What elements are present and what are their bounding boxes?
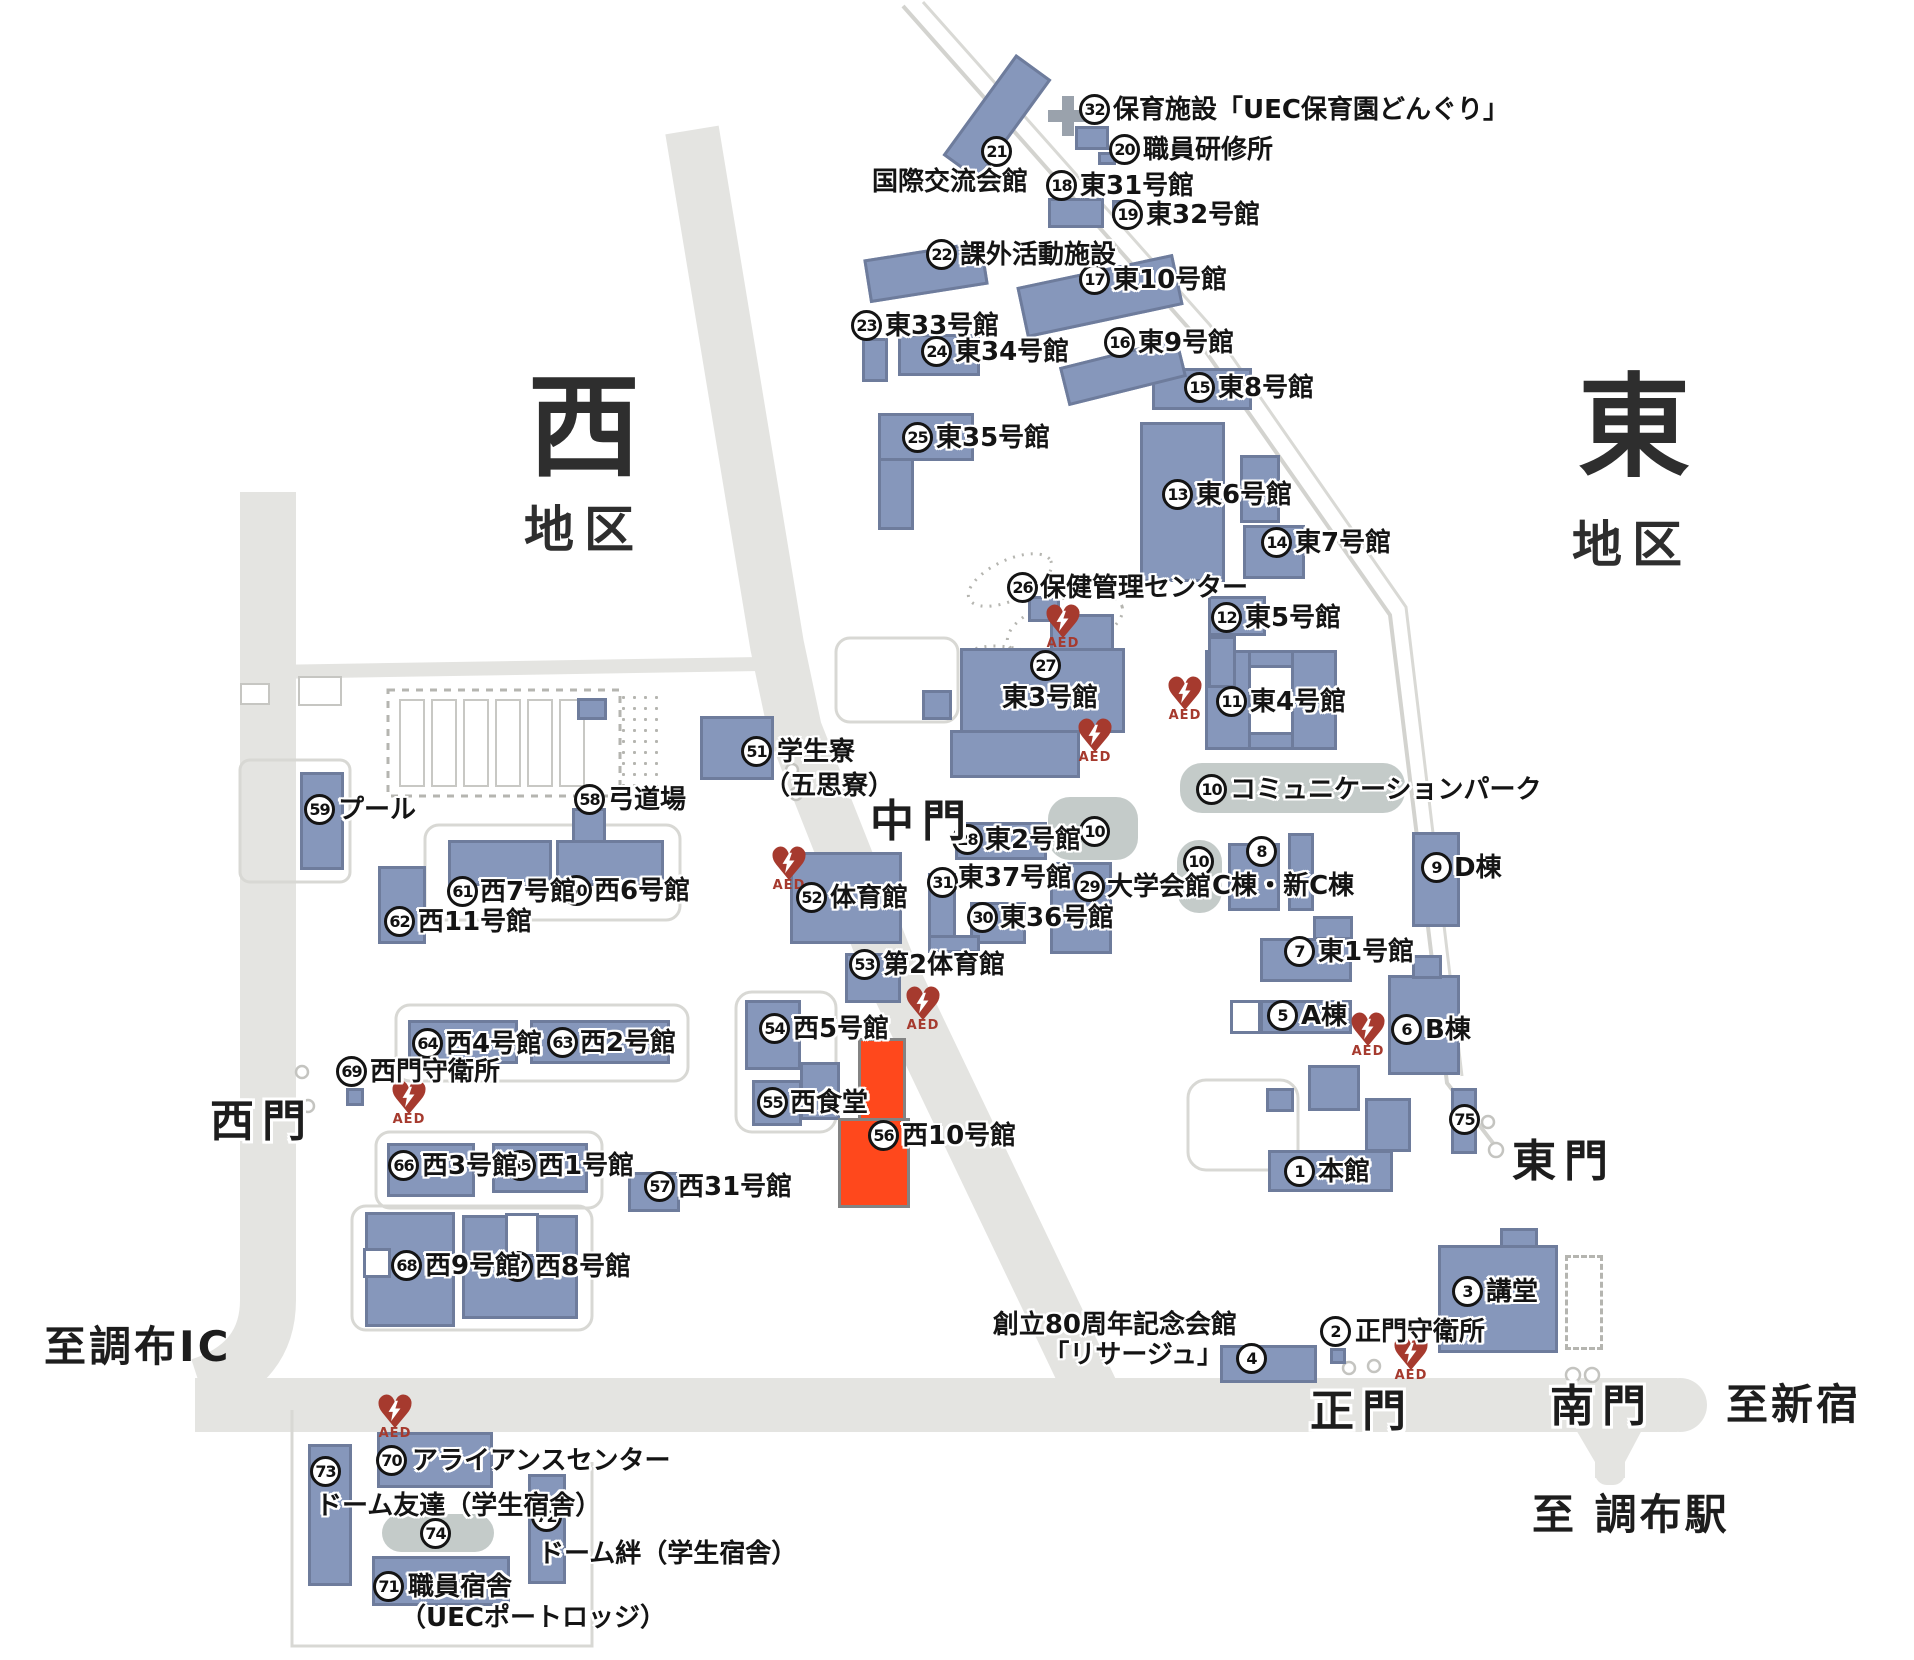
building-52-label: 体育館 <box>830 884 908 913</box>
gate-label-0: 中門 <box>870 800 974 844</box>
building-18-shape[interactable] <box>1048 198 1104 228</box>
building-55-marker[interactable]: 55 <box>757 1087 788 1118</box>
campus-map: 1本館2正門守衛所3講堂4創立80周年記念会館「リサージュ」5A棟6B棟7東1号… <box>0 0 1914 1660</box>
building-14-marker[interactable]: 14 <box>1261 527 1292 558</box>
building-10-label: コミュニケーションパーク <box>1230 776 1541 805</box>
deco-dashed-area <box>1565 1255 1603 1350</box>
building-69-shape[interactable] <box>346 1088 364 1106</box>
building-2-marker[interactable]: 2 <box>1320 1316 1351 1347</box>
building-24-label: 東34号館 <box>955 338 1069 367</box>
building-shape <box>1266 1088 1294 1112</box>
building-55-label: 西食堂 <box>790 1089 868 1118</box>
building-70-label: アライアンスセンター <box>412 1447 670 1476</box>
building-51-label: 学生寮 <box>777 738 855 767</box>
direction-label-2: 至 調布駅 <box>1532 1494 1730 1536</box>
building-14-label: 東7号館 <box>1295 529 1391 558</box>
building-18-marker[interactable]: 18 <box>1046 170 1077 201</box>
direction-label-1: 至新宿 <box>1726 1384 1861 1426</box>
district-sub-0: 地区 <box>524 505 644 555</box>
bolt-icon <box>1176 682 1193 704</box>
building-3-marker[interactable]: 3 <box>1452 1276 1483 1307</box>
dot-grid-court <box>618 692 664 794</box>
building-27-shape[interactable] <box>950 730 1080 778</box>
gate-label-4: 南門 <box>1550 1385 1654 1429</box>
building-56-marker[interactable]: 56 <box>868 1120 899 1151</box>
building-2-shape[interactable] <box>1330 1348 1346 1364</box>
building-13-marker[interactable]: 13 <box>1162 479 1193 510</box>
building-30-label: 東36号館 <box>1000 904 1114 933</box>
aed-icon: ♥AED <box>900 986 946 1033</box>
building-15-label: 東8号館 <box>1218 374 1314 403</box>
building-75-marker[interactable]: 75 <box>1449 1104 1480 1135</box>
building-51-marker[interactable]: 51 <box>741 736 772 767</box>
building-67-label: 西8号館 <box>535 1253 631 1282</box>
building-64-label: 西4号館 <box>446 1030 542 1059</box>
building-57-marker[interactable]: 57 <box>644 1171 675 1202</box>
bolt-icon <box>780 852 797 874</box>
building-19-label: 東32号館 <box>1146 201 1260 230</box>
building-60-label: 西6号館 <box>594 877 690 906</box>
aed-icon: ♥AED <box>1040 604 1086 651</box>
building-shape <box>1308 1065 1360 1111</box>
building-68-notch <box>363 1248 391 1278</box>
building-56-label: 西10号館 <box>902 1122 1016 1151</box>
building-32-marker[interactable]: 32 <box>1079 94 1110 125</box>
gate-label-1: 西門 <box>210 1100 314 1144</box>
a-wing-annex <box>1230 1000 1261 1034</box>
building-2-label: 正門守衛所 <box>1355 1318 1485 1347</box>
building-1-label: 本館 <box>1318 1158 1370 1187</box>
district-kanji-1: 東 <box>1578 372 1690 484</box>
building-4-label: 創立80周年記念会館 <box>993 1311 1237 1340</box>
aed-icon: ♥AED <box>1345 1012 1391 1059</box>
building-66-label: 西3号館 <box>422 1152 518 1181</box>
bolt-icon <box>400 1086 417 1108</box>
bolt-icon <box>1086 724 1103 746</box>
building-27-marker[interactable]: 27 <box>1030 650 1061 681</box>
building-59-marker[interactable]: 59 <box>304 794 335 825</box>
building-7-marker[interactable]: 7 <box>1284 936 1315 967</box>
building-21-label: 国際交流会館 <box>872 168 1028 197</box>
building-11-marker[interactable]: 11 <box>1216 686 1247 717</box>
building-3-label: 講堂 <box>1486 1278 1538 1307</box>
deco-structure <box>298 676 342 706</box>
building-3-shape[interactable] <box>1500 1228 1538 1248</box>
building-27-label: 東3号館 <box>1002 684 1098 713</box>
building-27-shape[interactable] <box>922 690 952 720</box>
building-28-label: 東2号館 <box>985 826 1081 855</box>
building-65-label: 西1号館 <box>538 1152 634 1181</box>
building-7-label: 東1号館 <box>1318 938 1414 967</box>
building-68-marker[interactable]: 68 <box>391 1250 422 1281</box>
building-16-label: 東9号館 <box>1138 329 1234 358</box>
building-32-label: 保育施設「UEC保育園どんぐり」 <box>1113 96 1509 125</box>
building-20-shape[interactable] <box>1075 126 1109 150</box>
building-25-shape[interactable] <box>878 458 914 530</box>
building-6-marker[interactable]: 6 <box>1391 1014 1422 1045</box>
building-66-marker[interactable]: 66 <box>388 1150 419 1181</box>
building-23-marker[interactable]: 23 <box>851 310 882 341</box>
building-73-marker[interactable]: 73 <box>310 1456 341 1487</box>
building-29-marker[interactable]: 29 <box>1074 871 1105 902</box>
building-20-label: 職員研修所 <box>1143 136 1273 165</box>
building-5-marker[interactable]: 5 <box>1267 1000 1298 1031</box>
building-shape <box>577 698 607 720</box>
building-26-marker[interactable]: 26 <box>1007 572 1038 603</box>
building-12-shape[interactable] <box>1208 636 1236 688</box>
building-63-label: 西2号館 <box>580 1029 676 1058</box>
building-19-marker[interactable]: 19 <box>1112 199 1143 230</box>
building-22-label: 課外活動施設 <box>960 241 1116 270</box>
building-61-marker[interactable]: 61 <box>447 876 478 907</box>
building-10-marker[interactable]: 10 <box>1079 816 1110 847</box>
aed-icon: ♥AED <box>386 1080 432 1127</box>
building-52-marker[interactable]: 52 <box>796 882 827 913</box>
aed-icon: ♥AED <box>372 1394 418 1441</box>
building-1-shape[interactable] <box>1365 1098 1411 1152</box>
building-23-shape[interactable] <box>862 338 888 382</box>
building-12-label: 東5号館 <box>1245 604 1341 633</box>
building-25-marker[interactable]: 25 <box>902 422 933 453</box>
building-30-marker[interactable]: 30 <box>967 902 998 933</box>
building-12-marker[interactable]: 12 <box>1211 602 1242 633</box>
building-61-label: 西7号館 <box>480 878 576 907</box>
building-62-marker[interactable]: 62 <box>384 906 415 937</box>
building-54-label: 西5号館 <box>793 1015 889 1044</box>
building-64-marker[interactable]: 64 <box>412 1028 443 1059</box>
gate-label-2: 東門 <box>1512 1140 1616 1184</box>
building-53-marker[interactable]: 53 <box>849 949 880 980</box>
building-70-marker[interactable]: 70 <box>376 1445 407 1476</box>
building-71-label: 職員宿舎 <box>408 1573 512 1602</box>
building-22-marker[interactable]: 22 <box>926 239 957 270</box>
aed-icon: ♥AED <box>1072 718 1118 765</box>
west-road <box>200 492 268 1386</box>
building-26-label: 保健管理センター <box>1040 574 1248 603</box>
bolt-icon <box>1359 1018 1376 1040</box>
building-21-marker[interactable]: 21 <box>981 136 1012 167</box>
building-16-marker[interactable]: 16 <box>1104 327 1135 358</box>
bolt-icon <box>386 1400 403 1422</box>
building-4-label2: 「リサージュ」 <box>1043 1341 1223 1370</box>
bolt-icon <box>914 992 931 1014</box>
building-6-shape[interactable] <box>1412 955 1442 979</box>
building-4-shape[interactable] <box>1220 1345 1317 1383</box>
building-74-marker[interactable]: 74 <box>420 1518 451 1549</box>
gate-label-3: 正門 <box>1310 1390 1414 1434</box>
building-63-marker[interactable]: 63 <box>547 1027 578 1058</box>
aed-icon: ♥AED <box>1162 676 1208 723</box>
district-kanji-0: 西 <box>528 372 640 484</box>
building-1-marker[interactable]: 1 <box>1284 1156 1315 1187</box>
building-53-label: 第2体育館 <box>883 951 1005 980</box>
building-18-label: 東31号館 <box>1080 172 1194 201</box>
building-15-marker[interactable]: 15 <box>1184 372 1215 403</box>
building-68-label: 西9号館 <box>425 1252 521 1281</box>
bolt-icon <box>1054 610 1071 632</box>
building-57-label: 西31号館 <box>678 1173 792 1202</box>
building-72-label: ドーム絆（学生宿舎） <box>538 1540 797 1569</box>
direction-label-0: 至調布IC <box>44 1326 231 1368</box>
building-59-label: プール <box>338 796 416 825</box>
building-58-marker[interactable]: 58 <box>574 784 605 815</box>
building-20-marker[interactable]: 20 <box>1109 134 1140 165</box>
building-73-label: ドーム友達（学生宿舎） <box>316 1492 601 1521</box>
district-sub-1: 地区 <box>1572 520 1692 570</box>
building-69-label: 西門守衛所 <box>370 1058 500 1087</box>
building-4-marker[interactable]: 4 <box>1236 1343 1267 1374</box>
building-31-label: 東37号館 <box>958 864 1072 893</box>
deco-structure <box>240 683 270 705</box>
building-6-label: B棟 <box>1425 1016 1471 1045</box>
building-10-marker[interactable]: 10 <box>1196 774 1227 805</box>
building-29-label: 大学会館 <box>1107 873 1211 902</box>
building-8-marker[interactable]: 8 <box>1246 836 1277 867</box>
building-58-label: 弓道場 <box>608 786 686 815</box>
building-71-label2: （UECポートロッジ） <box>400 1604 666 1633</box>
building-13-label: 東6号館 <box>1196 481 1292 510</box>
building-62-label: 西11号館 <box>418 908 532 937</box>
building-69-marker[interactable]: 69 <box>336 1056 367 1087</box>
building-17-label: 東10号館 <box>1113 266 1227 295</box>
building-8-label: C棟・新C棟 <box>1212 872 1354 901</box>
building-5-label: A棟 <box>1301 1002 1347 1031</box>
building-9-label: D棟 <box>1454 854 1502 883</box>
building-31-marker[interactable]: 31 <box>927 867 958 898</box>
building-9-marker[interactable]: 9 <box>1421 852 1452 883</box>
building-25-label: 東35号館 <box>936 424 1050 453</box>
building-54-marker[interactable]: 54 <box>759 1013 790 1044</box>
building-71-marker[interactable]: 71 <box>373 1571 404 1602</box>
building-11-label: 東4号館 <box>1250 688 1346 717</box>
building-24-marker[interactable]: 24 <box>921 336 952 367</box>
